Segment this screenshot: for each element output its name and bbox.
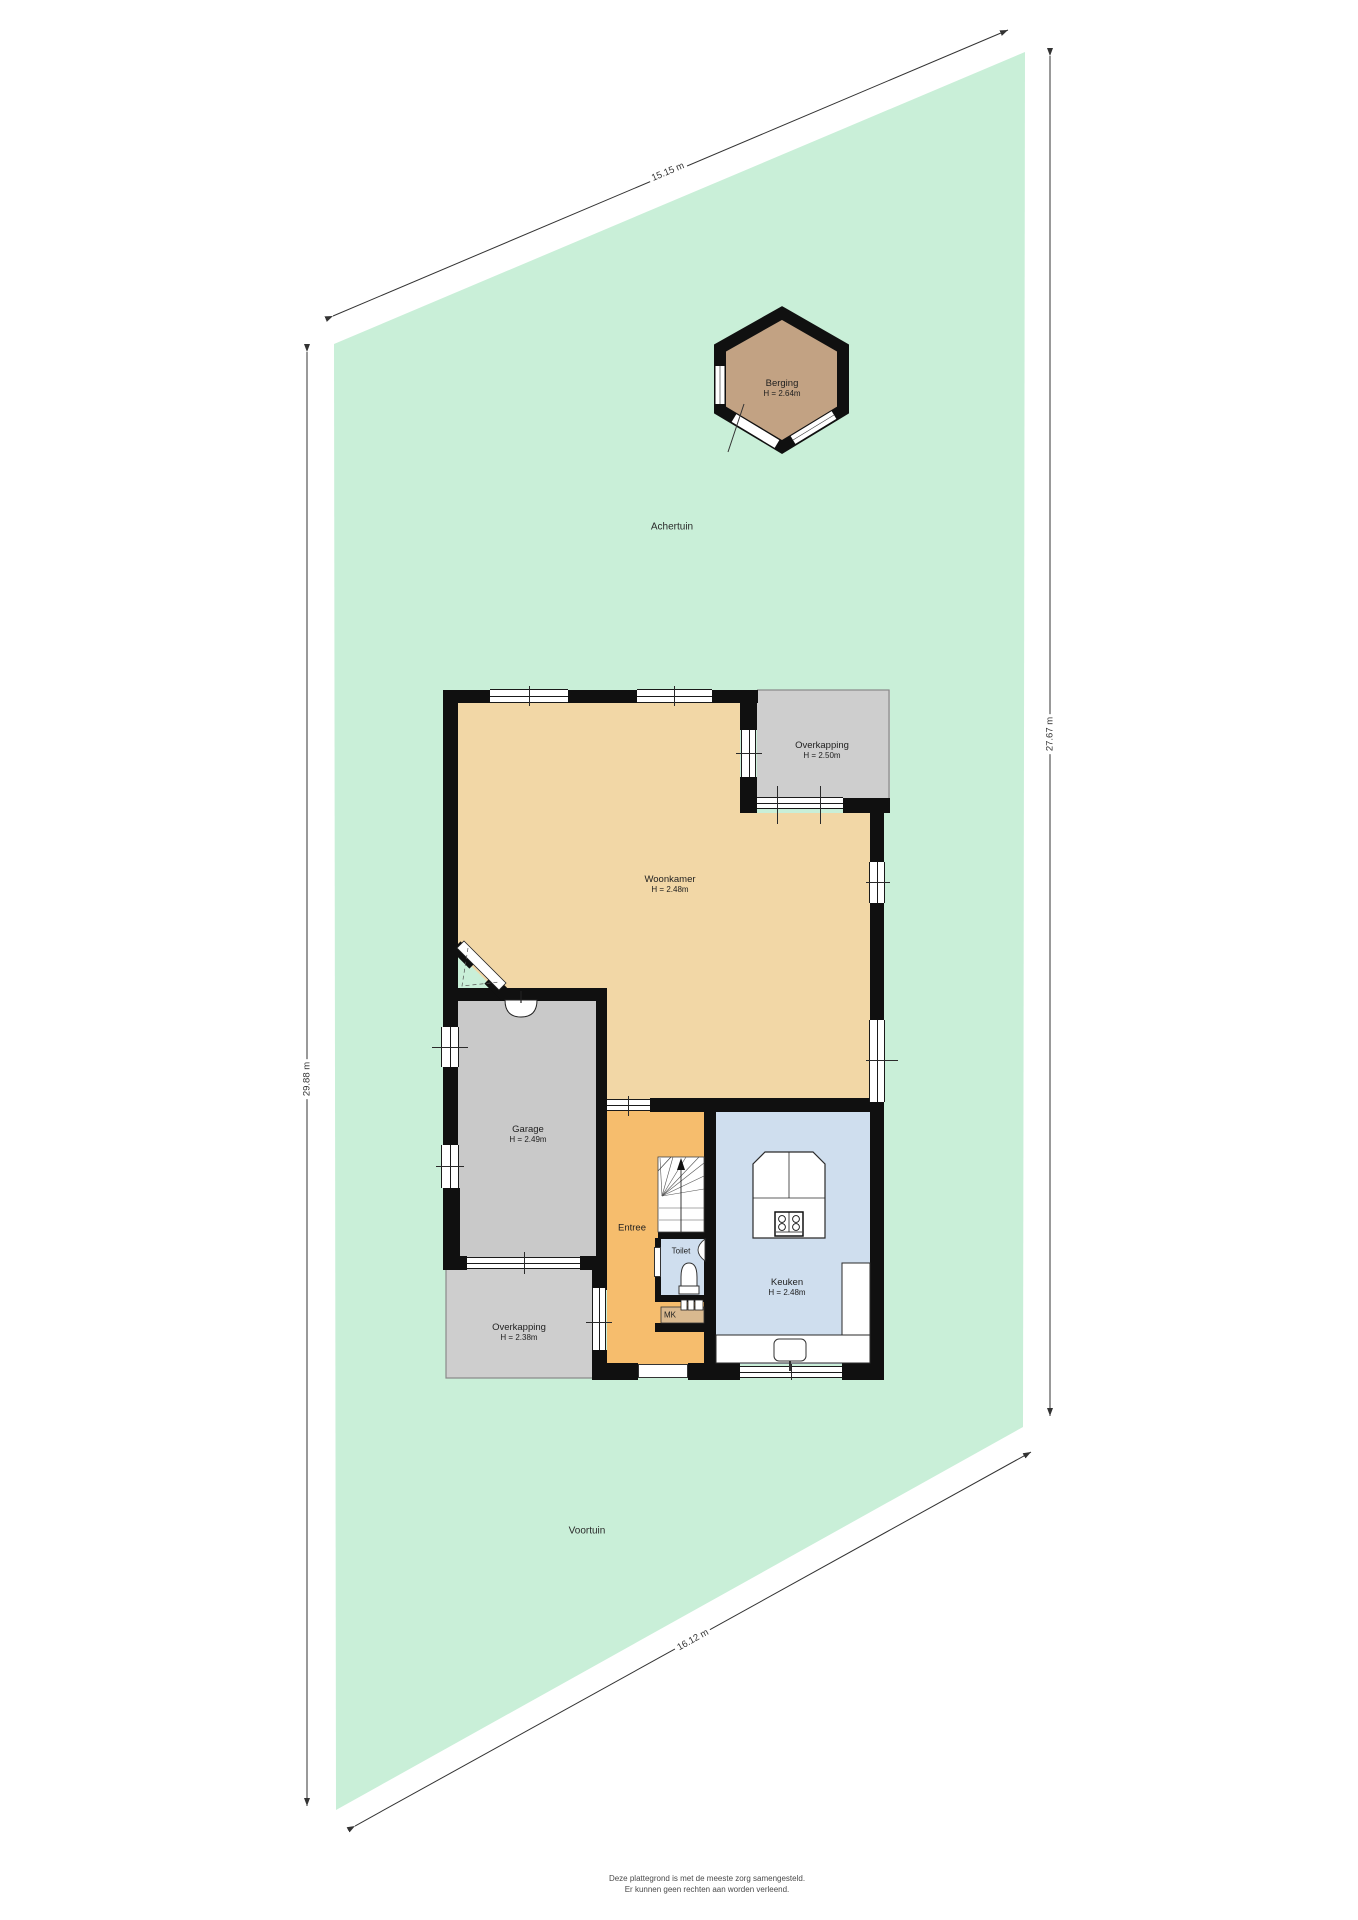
room-name: MK: [664, 1311, 676, 1320]
footer-disclaimer-line1: Deze plattegrond is met de meeste zorg s…: [609, 1874, 805, 1883]
room-name: Berging: [763, 378, 800, 389]
stove-icon: [775, 1212, 803, 1236]
room-label-garage: Garage H = 2.49m: [509, 1124, 546, 1144]
room-height: H = 2.49m: [509, 1135, 546, 1144]
footer-disclaimer-line2: Er kunnen geen rechten aan worden verlee…: [625, 1885, 790, 1894]
room-name: Keuken: [768, 1277, 805, 1288]
room-label-entree: Entree: [618, 1223, 646, 1234]
floorplan-page: Achertuin Voortuin Berging H = 2.64m Ove…: [0, 0, 1358, 1920]
kitchen-sink-icon: [774, 1339, 806, 1371]
room-name: Entree: [618, 1223, 646, 1234]
room-height: H = 2.64m: [763, 389, 800, 398]
dimension-label-right: 27.67 m: [1045, 714, 1056, 754]
room-height: H = 2.50m: [795, 751, 849, 760]
diagonal-door: [456, 941, 506, 996]
room-name: Woonkamer: [644, 874, 695, 885]
room-label-berging: Berging H = 2.64m: [763, 378, 800, 398]
dimension-label-left: 29.88 m: [302, 1059, 313, 1099]
room-height: H = 2.48m: [768, 1288, 805, 1297]
floorplan-detail-layer: [0, 0, 1358, 1920]
room-height: H = 2.48m: [644, 885, 695, 894]
frontyard-label: Voortuin: [569, 1526, 606, 1537]
room-height: H = 2.38m: [492, 1333, 546, 1342]
toilet-bowl-icon: [679, 1263, 699, 1294]
staircase: [658, 1157, 704, 1232]
room-name: Toilet: [672, 1247, 691, 1256]
toilet-sink-icon: [698, 1239, 705, 1261]
room-label-keuken: Keuken H = 2.48m: [768, 1277, 805, 1297]
room-label-overkapping-top: Overkapping H = 2.50m: [795, 740, 849, 760]
kitchen-island: [753, 1152, 825, 1238]
room-label-toilet: Toilet: [672, 1247, 691, 1256]
room-label-woonkamer: Woonkamer H = 2.48m: [644, 874, 695, 894]
backyard-label: Achertuin: [651, 522, 693, 533]
room-name: Garage: [509, 1124, 546, 1135]
room-label-mk: MK: [664, 1311, 676, 1320]
room-name: Overkapping: [492, 1322, 546, 1333]
room-name: Overkapping: [795, 740, 849, 751]
garage-interior-door: [505, 991, 537, 1017]
room-label-overkapping-bottom: Overkapping H = 2.38m: [492, 1322, 546, 1342]
